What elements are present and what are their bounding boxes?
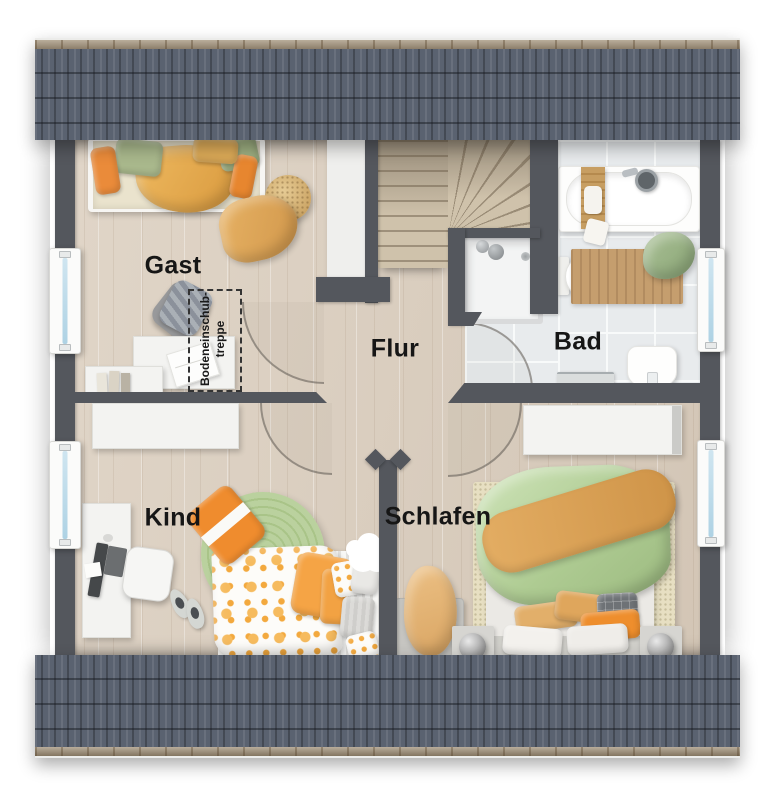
cloud-shelf — [346, 540, 364, 558]
wall-shower-left — [448, 228, 465, 325]
kind-window — [49, 441, 81, 549]
window-glass — [709, 258, 714, 342]
book — [96, 373, 107, 393]
shower-head-icon — [635, 169, 658, 192]
window-handle — [705, 443, 717, 450]
shower-head-icon — [488, 244, 504, 260]
window-handle — [705, 251, 717, 258]
mouse — [103, 534, 113, 542]
window-glass — [709, 450, 714, 537]
rolled-towel — [584, 186, 602, 214]
wall-kind-schlafen — [379, 460, 397, 655]
slipper-print — [189, 606, 200, 620]
paper-sheet — [84, 562, 102, 578]
pillow — [502, 624, 563, 658]
desk-chair — [121, 545, 176, 603]
room-label-gast: Gast — [145, 254, 202, 279]
room-label-bad: Bad — [554, 330, 602, 355]
throw-blanket — [192, 136, 239, 164]
bad-window — [697, 248, 725, 352]
attic-ladder-text: Bodeneinschub- treppe — [198, 291, 228, 385]
pillow-stripe — [201, 502, 251, 547]
room-label-kind: Kind — [145, 506, 202, 531]
slipper-print — [173, 596, 186, 610]
window-handle — [705, 537, 717, 544]
staircase-straight-flight — [378, 140, 448, 268]
attic-ladder-text-line1: Bodeneinschub- — [198, 291, 213, 385]
kind-sideboard — [92, 403, 239, 449]
pillow — [113, 138, 163, 178]
wall-stairs-bad — [530, 140, 558, 314]
window-handle — [59, 251, 71, 258]
roof-top — [35, 38, 740, 140]
stairwell-knee-wall — [327, 140, 366, 278]
attic-ladder-label: Bodeneinschub- treppe — [188, 289, 238, 388]
window-handle — [705, 342, 717, 349]
window-handle — [59, 539, 71, 546]
room-label-schlafen: Schlafen — [385, 505, 492, 530]
staircase-winder-treads — [448, 140, 530, 237]
floor-plan: Gast Flur Bad Kind Schlafen Bodeneinschu… — [0, 0, 775, 796]
wall-bad-schlafen — [448, 383, 720, 403]
roof-tiles — [35, 49, 740, 140]
room-label-flur: Flur — [371, 337, 419, 362]
shower-drain — [521, 252, 530, 261]
gast-window — [49, 248, 81, 354]
wall-flur-corner — [316, 277, 390, 302]
window-handle — [59, 444, 71, 451]
attic-ladder-text-line2: treppe — [213, 291, 228, 385]
window-glass — [63, 451, 68, 539]
pillow — [350, 557, 382, 595]
roof-bottom — [35, 655, 740, 758]
roof-tiles — [35, 655, 740, 747]
wall-gast-kind — [55, 392, 327, 403]
roof-gutter — [35, 747, 740, 758]
wardrobe — [523, 405, 682, 455]
window-handle — [59, 344, 71, 351]
schlafen-window — [697, 440, 725, 547]
window-glass — [63, 258, 68, 344]
book — [109, 371, 120, 392]
book — [121, 373, 130, 393]
wardrobe-side — [672, 406, 681, 454]
pillow — [566, 623, 629, 656]
